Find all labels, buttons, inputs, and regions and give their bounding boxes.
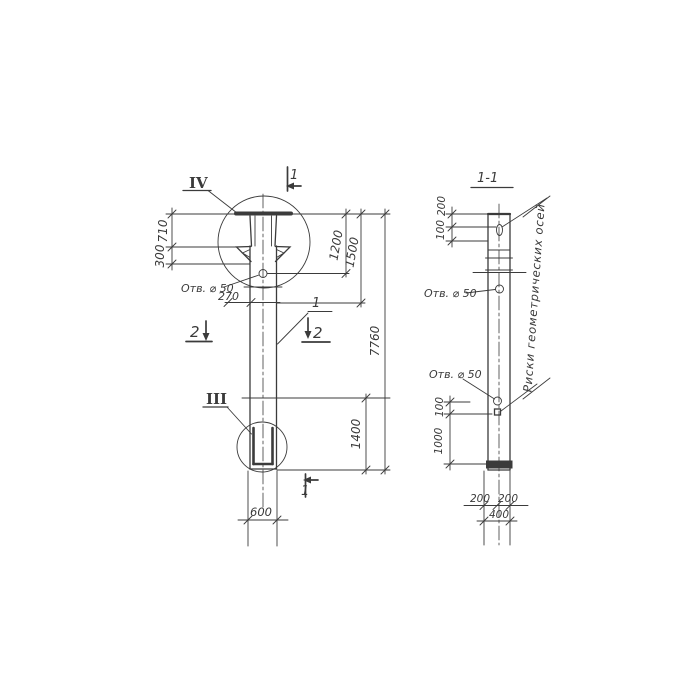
dim-300: 300 [153,244,167,267]
detail-mark-IV-label: IV [189,174,208,192]
dim-200-top: 200 [436,196,448,216]
section-cut-1-bottom-label: 1 [301,484,309,499]
dim-7760: 7760 [368,325,382,356]
drawing-canvas: IV III 1 1 2 [0,0,700,700]
section-title: 1-1 [477,171,498,186]
section-hole-label-lower: Отв. ⌀ 50 [429,368,482,381]
dim-400: 400 [489,509,509,521]
dim-200-bottom-left: 200 [470,493,490,505]
dim-1400: 1400 [349,418,363,449]
section-bottom-shoe [486,461,513,469]
section-hole-label-upper: Отв. ⌀ 50 [424,287,477,300]
section-cut-1-top-label: 1 [290,168,298,183]
dim-270: 270 [218,290,239,303]
dim-1000: 1000 [433,427,445,454]
section-cut-2-left-label: 2 [190,323,200,341]
drawing-sheet: IV III 1 1 2 [0,0,700,700]
position-mark-label: 1 [312,296,320,311]
dim-710: 710 [156,219,170,242]
paper-background [0,0,700,700]
dim-100-lower: 100 [434,397,446,417]
dim-600: 600 [250,505,272,519]
dim-200-bottom-right: 200 [498,493,518,505]
section-cut-2-right-label: 2 [313,324,323,342]
dim-100-top: 100 [435,220,447,240]
detail-mark-III-label: III [206,390,227,408]
